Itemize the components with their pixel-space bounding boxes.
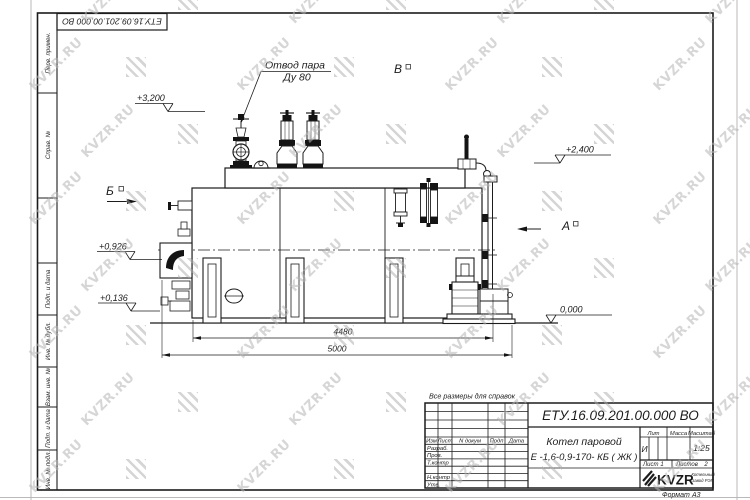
col-ndokum: N докум	[459, 438, 481, 444]
left-wall-valve	[168, 201, 192, 210]
corner-stamp-designation: ЕТУ.16.09.201.00.000 ВО	[62, 17, 162, 27]
lit-value: И	[641, 444, 648, 454]
kvzr-logo-text: KVZR	[657, 473, 694, 488]
row-tkontr: Т.контр	[427, 461, 450, 467]
steam-outlet-label-1: Отвод пара	[265, 60, 325, 72]
product-name-1: Котел паровой	[546, 436, 621, 448]
margin-label-podp-data-2: Подп. и дата	[45, 409, 52, 448]
lit-label: Лит	[646, 431, 659, 437]
masshtab-label: Масштаб	[688, 431, 716, 437]
elevation-2400: +2,400	[534, 145, 611, 164]
kvzr-logo: KVZR Котельный завод РЭП	[643, 471, 715, 488]
svg-text:+3,200: +3,200	[137, 93, 165, 103]
svg-text:+0,926: +0,926	[99, 242, 127, 252]
view-label-b: Б	[106, 184, 114, 198]
margin-labels: Перв. примен. Справ. № Подп. и дата Инв.…	[45, 32, 52, 489]
col-izm: Изм	[426, 438, 437, 444]
svg-text:+2,400: +2,400	[566, 145, 594, 155]
format-label: Формат А3	[662, 492, 701, 499]
margin-label-sprav-no: Справ. №	[45, 131, 52, 159]
dim-5000: 5000	[328, 344, 347, 354]
margin-label-perv-primen: Перв. примен.	[45, 32, 52, 73]
steam-outlet-valve	[230, 114, 252, 169]
margin-label-inv-podl: Инв. № подл.	[45, 451, 52, 489]
boiler-drawing	[150, 110, 558, 324]
format-value: А3	[691, 492, 701, 499]
product-name-2: Е -1,6-0,9-170- КБ ( ЖК )	[531, 452, 638, 463]
drawing-sheet: Перв. примен. Справ. № Подп. и дата Инв.…	[0, 0, 750, 500]
row-nkontr: Н.контр	[427, 475, 451, 481]
safety-valve-1	[277, 110, 297, 168]
steam-outlet-label-2: Ду 80	[282, 72, 311, 84]
massa-label: Масса	[670, 431, 688, 437]
safety-valve-2	[303, 110, 323, 168]
row-razrab: Разраб.	[427, 446, 448, 452]
elevation-0000: 0,000	[546, 305, 612, 324]
down-pipe	[483, 176, 498, 292]
margin-label-inv-dubl: Инв. № дубл.	[45, 322, 52, 360]
elevation-0136: +0,136	[98, 293, 160, 311]
dome-fitting	[252, 161, 270, 168]
list-label: Лист	[642, 462, 658, 468]
elevation-3200: +3,200	[135, 93, 205, 112]
col-podp: Подп	[490, 438, 505, 444]
boiler-drawing-sheet: Перв. примен. Справ. № Подп. и дата Инв.…	[0, 0, 750, 500]
listov-label: Листов	[675, 462, 698, 468]
row-utv: Утв.	[426, 482, 440, 488]
kvzr-logo-sub1: Котельный	[691, 472, 715, 477]
row-prov: Пров.	[427, 453, 442, 459]
col-data: Дата	[508, 438, 525, 444]
margin-label-vzam-inv: Взам. инв. №	[45, 368, 52, 407]
corner-stamp: ЕТУ.16.09.201.00.000 ВО	[57, 14, 167, 31]
listov-value: 2	[703, 462, 708, 468]
burner-box	[160, 222, 192, 311]
reference-note: Все размеры для справок	[429, 392, 516, 401]
elevation-0926: +0,926	[97, 242, 162, 260]
view-label-a: А	[561, 219, 570, 233]
title-block: ЕТУ.16.09.201.00.000 ВО Изм Лист N докум…	[425, 403, 716, 488]
dim-4480: 4480	[334, 327, 353, 337]
format-word: Формат	[662, 492, 690, 499]
col-list: Лист	[437, 438, 453, 444]
list-value: 1	[660, 462, 663, 468]
kvzr-logo-sub2: завод РЭП	[691, 478, 714, 483]
svg-text:0,000: 0,000	[560, 305, 583, 315]
title-designation: ЕТУ.16.09.201.00.000 ВО	[542, 408, 699, 423]
margin-label-podp-data-1: Подп. и дата	[45, 269, 52, 308]
svg-text:+0,136: +0,136	[100, 293, 128, 303]
view-label-v: В	[394, 62, 402, 76]
scale-value: 1:25	[693, 443, 710, 453]
